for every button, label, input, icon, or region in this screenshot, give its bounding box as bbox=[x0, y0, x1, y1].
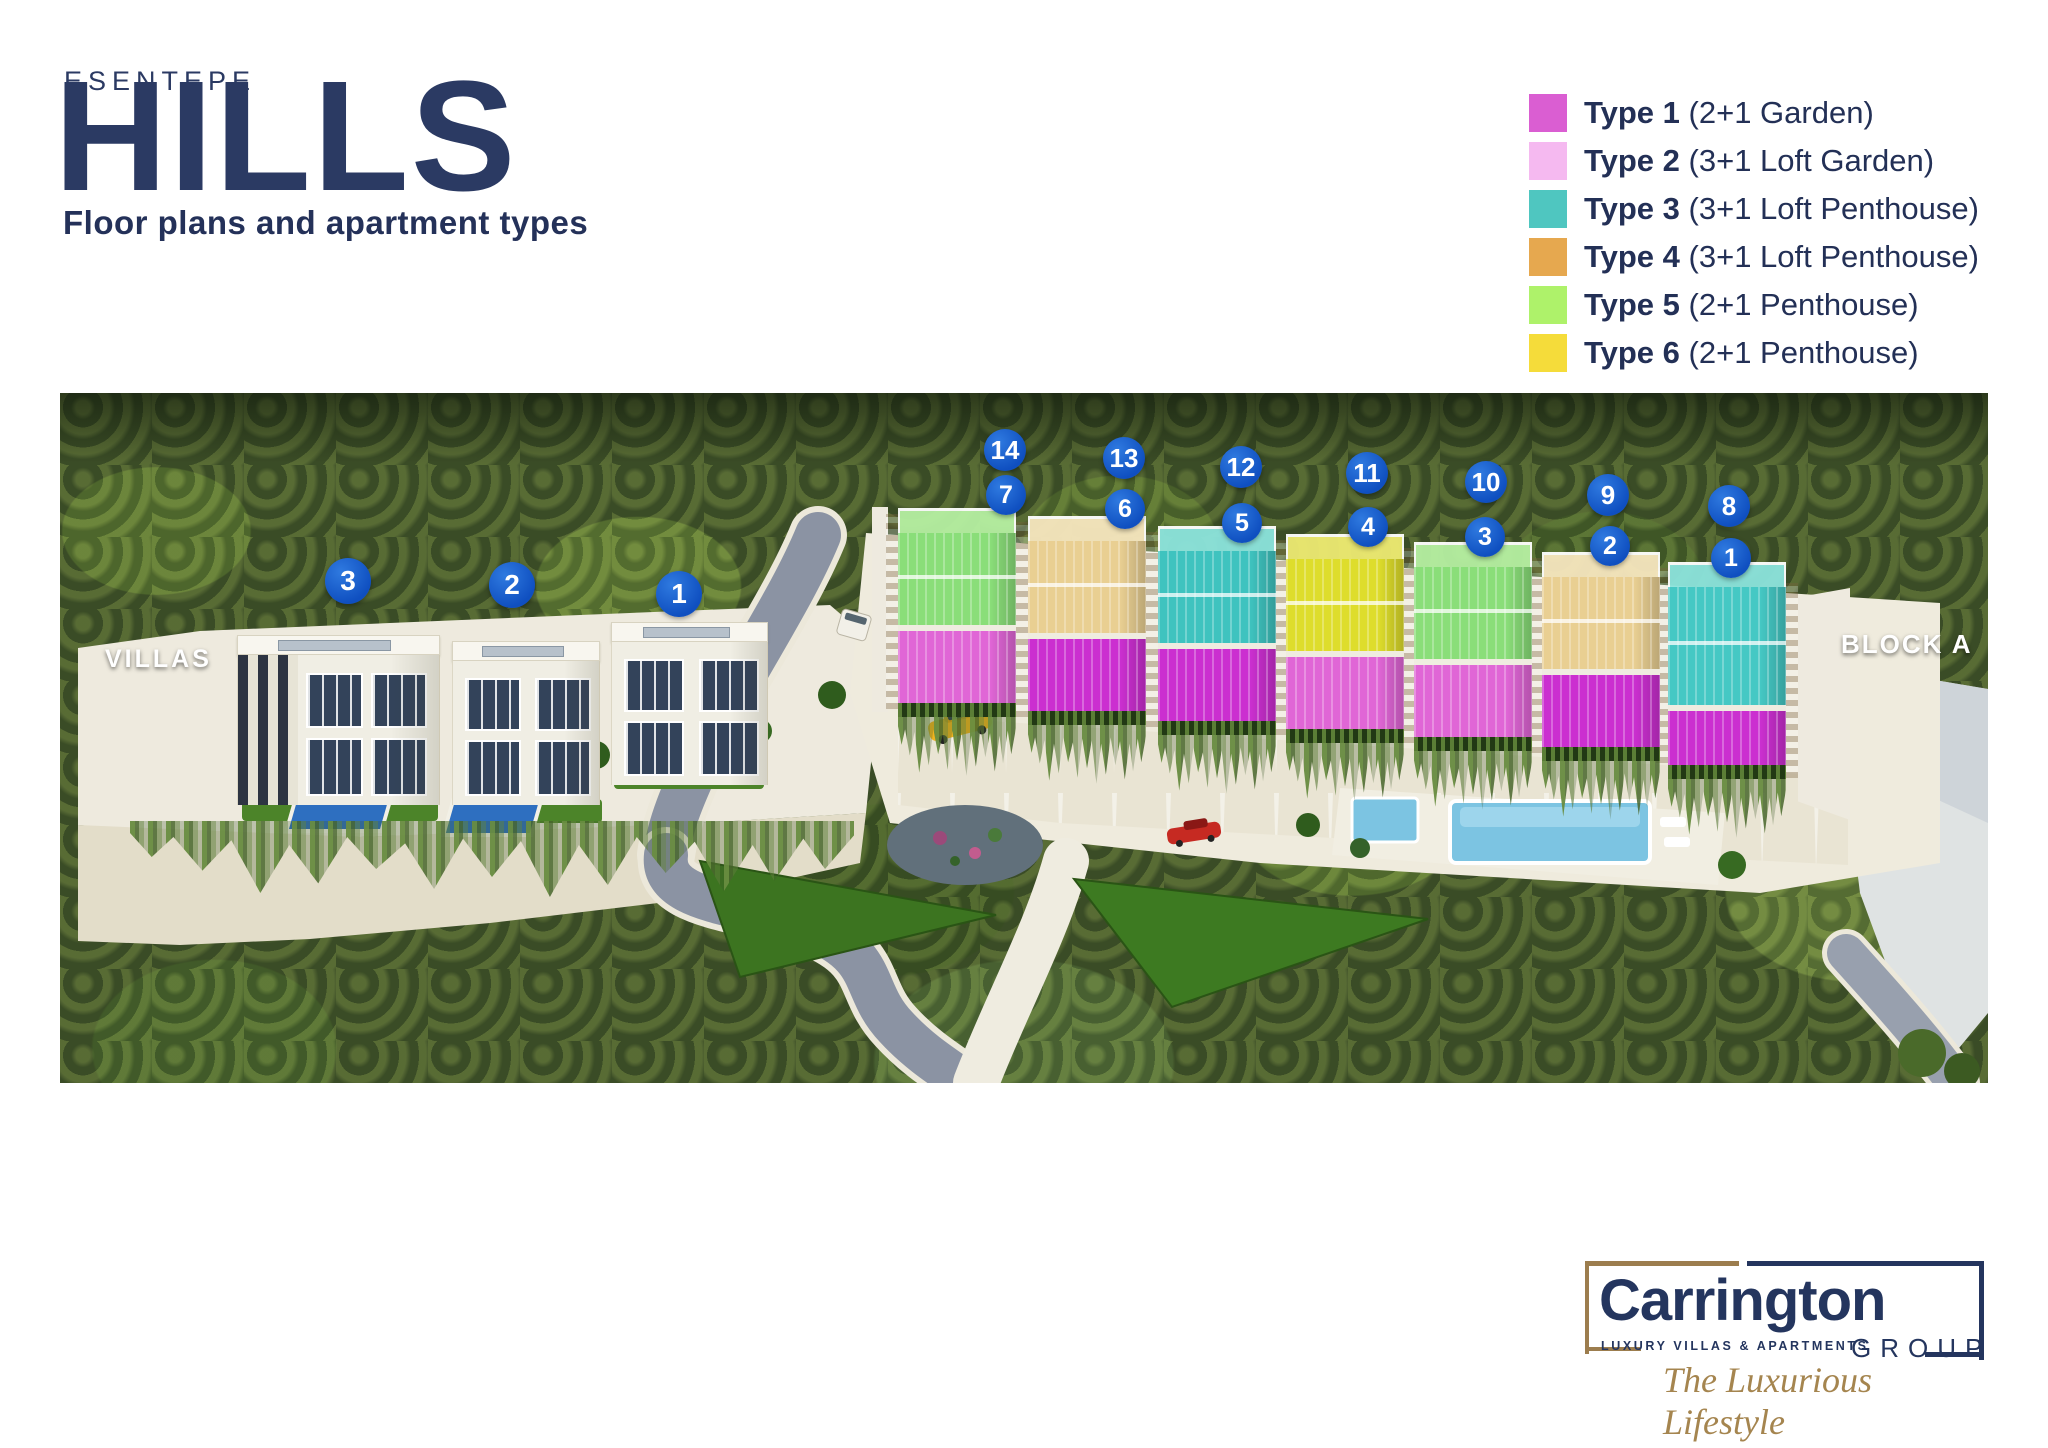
logo-tagline: The Luxurious Lifestyle bbox=[1663, 1359, 1983, 1443]
brochure-page: ESENTEPE HILLS Floor plans and apartment… bbox=[0, 0, 2048, 1448]
type4-color-swatch bbox=[1529, 238, 1567, 276]
apartment-unit-13-6 bbox=[1028, 516, 1146, 787]
type5-color-swatch bbox=[1529, 286, 1567, 324]
hedge bbox=[1542, 747, 1660, 761]
apartment-unit-8-1 bbox=[1668, 562, 1786, 841]
villa-marker-1: 1 bbox=[656, 571, 702, 617]
legend-item-type4: Type 4 (3+1 Loft Penthouse) bbox=[1529, 238, 1979, 276]
villa-marker-3: 3 bbox=[325, 558, 371, 604]
villas-label: VILLAS bbox=[105, 645, 212, 674]
block-end-wall-right bbox=[1798, 588, 1850, 820]
page-title: Floor plans and apartment types bbox=[63, 204, 588, 242]
hedge bbox=[1158, 721, 1276, 735]
hanging-vines bbox=[1286, 743, 1404, 805]
unit-marker-12: 12 bbox=[1220, 446, 1262, 488]
type2-color-swatch bbox=[1529, 142, 1567, 180]
site-plan-render: VILLAS BLOCK A 3 2 1 14 13 12 11 10 9 8 … bbox=[60, 393, 1988, 1083]
stone-pillar bbox=[1016, 522, 1028, 717]
legend-item-type1: Type 1 (2+1 Garden) bbox=[1529, 94, 1979, 132]
stone-pillar bbox=[1786, 583, 1798, 778]
roof-skylight bbox=[278, 640, 391, 651]
villa-roof bbox=[611, 622, 768, 642]
legend-label: Type 4 (3+1 Loft Penthouse) bbox=[1584, 238, 1979, 276]
unit-marker-14: 14 bbox=[984, 429, 1026, 471]
carrington-wordmark: Carrington bbox=[1599, 1267, 1885, 1334]
stone-pillar bbox=[1146, 532, 1158, 727]
unit-marker-11: 11 bbox=[1346, 452, 1388, 494]
hanging-vines bbox=[1028, 725, 1146, 787]
legend-item-type5: Type 5 (2+1 Penthouse) bbox=[1529, 286, 1979, 324]
legend-item-type2: Type 2 (3+1 Loft Garden) bbox=[1529, 142, 1979, 180]
apartment-unit-9-2 bbox=[1542, 552, 1660, 823]
villa-facade bbox=[452, 661, 600, 805]
villa-facade bbox=[611, 642, 768, 785]
block-a-label: BLOCK A bbox=[1841, 629, 1972, 660]
unit-marker-7: 7 bbox=[986, 475, 1026, 515]
legend-label: Type 2 (3+1 Loft Garden) bbox=[1584, 142, 1934, 180]
villa-roof bbox=[452, 641, 600, 661]
legend-item-type6: Type 6 (2+1 Penthouse) bbox=[1529, 334, 1979, 372]
apartment-unit-10-3 bbox=[1414, 542, 1532, 813]
villa-1 bbox=[611, 622, 768, 785]
legend-label: Type 6 (2+1 Penthouse) bbox=[1584, 334, 1919, 372]
unit-marker-4: 4 bbox=[1348, 507, 1388, 547]
unit-marker-5: 5 bbox=[1222, 503, 1262, 543]
hedge bbox=[898, 703, 1016, 717]
unit-marker-10: 10 bbox=[1465, 461, 1507, 503]
unit-marker-6: 6 bbox=[1105, 489, 1145, 529]
apartment-unit-14-7 bbox=[898, 508, 1016, 779]
villa-facade bbox=[237, 655, 440, 805]
hedge bbox=[1028, 711, 1146, 725]
legend-item-type3: Type 3 (3+1 Loft Penthouse) bbox=[1529, 190, 1979, 228]
legend-label: Type 5 (2+1 Penthouse) bbox=[1584, 286, 1919, 324]
villa-marker-2: 2 bbox=[489, 562, 535, 608]
type3-color-swatch bbox=[1529, 190, 1567, 228]
legend-label: Type 3 (3+1 Loft Penthouse) bbox=[1584, 190, 1979, 228]
hedge bbox=[1668, 765, 1786, 779]
type1-color-swatch bbox=[1529, 94, 1567, 132]
hanging-vines bbox=[1414, 751, 1532, 813]
villa-2 bbox=[452, 641, 600, 805]
villa-3 bbox=[237, 635, 440, 805]
hedge bbox=[1414, 737, 1532, 751]
hanging-vines bbox=[1668, 779, 1786, 841]
hanging-vines bbox=[1158, 735, 1276, 797]
roof-skylight bbox=[643, 627, 730, 638]
carrington-logo: Carrington LUXURY VILLAS & APARTMENTS GR… bbox=[1585, 1255, 1983, 1405]
unit-marker-3: 3 bbox=[1465, 517, 1505, 557]
hedge bbox=[1286, 729, 1404, 743]
unit-marker-1: 1 bbox=[1711, 538, 1751, 578]
stone-pillar bbox=[886, 514, 898, 709]
unit-marker-2: 2 bbox=[1590, 526, 1630, 566]
unit-marker-8: 8 bbox=[1708, 485, 1750, 527]
hanging-vines bbox=[898, 717, 1016, 779]
villa-roof bbox=[237, 635, 440, 655]
unit-marker-13: 13 bbox=[1103, 437, 1145, 479]
apartment-unit-11-4 bbox=[1286, 534, 1404, 805]
glazed-wing bbox=[238, 655, 298, 805]
brand-hills: HILLS bbox=[54, 58, 518, 215]
logo-subtitle: LUXURY VILLAS & APARTMENTS bbox=[1601, 1339, 1869, 1353]
unit-marker-9: 9 bbox=[1587, 474, 1629, 516]
apartment-unit-12-5 bbox=[1158, 526, 1276, 797]
legend-label: Type 1 (2+1 Garden) bbox=[1584, 94, 1874, 132]
roof-skylight bbox=[482, 646, 564, 657]
hanging-vines bbox=[1542, 761, 1660, 823]
apartment-type-legend: Type 1 (2+1 Garden) Type 2 (3+1 Loft Gar… bbox=[1529, 94, 1979, 372]
type6-color-swatch bbox=[1529, 334, 1567, 372]
